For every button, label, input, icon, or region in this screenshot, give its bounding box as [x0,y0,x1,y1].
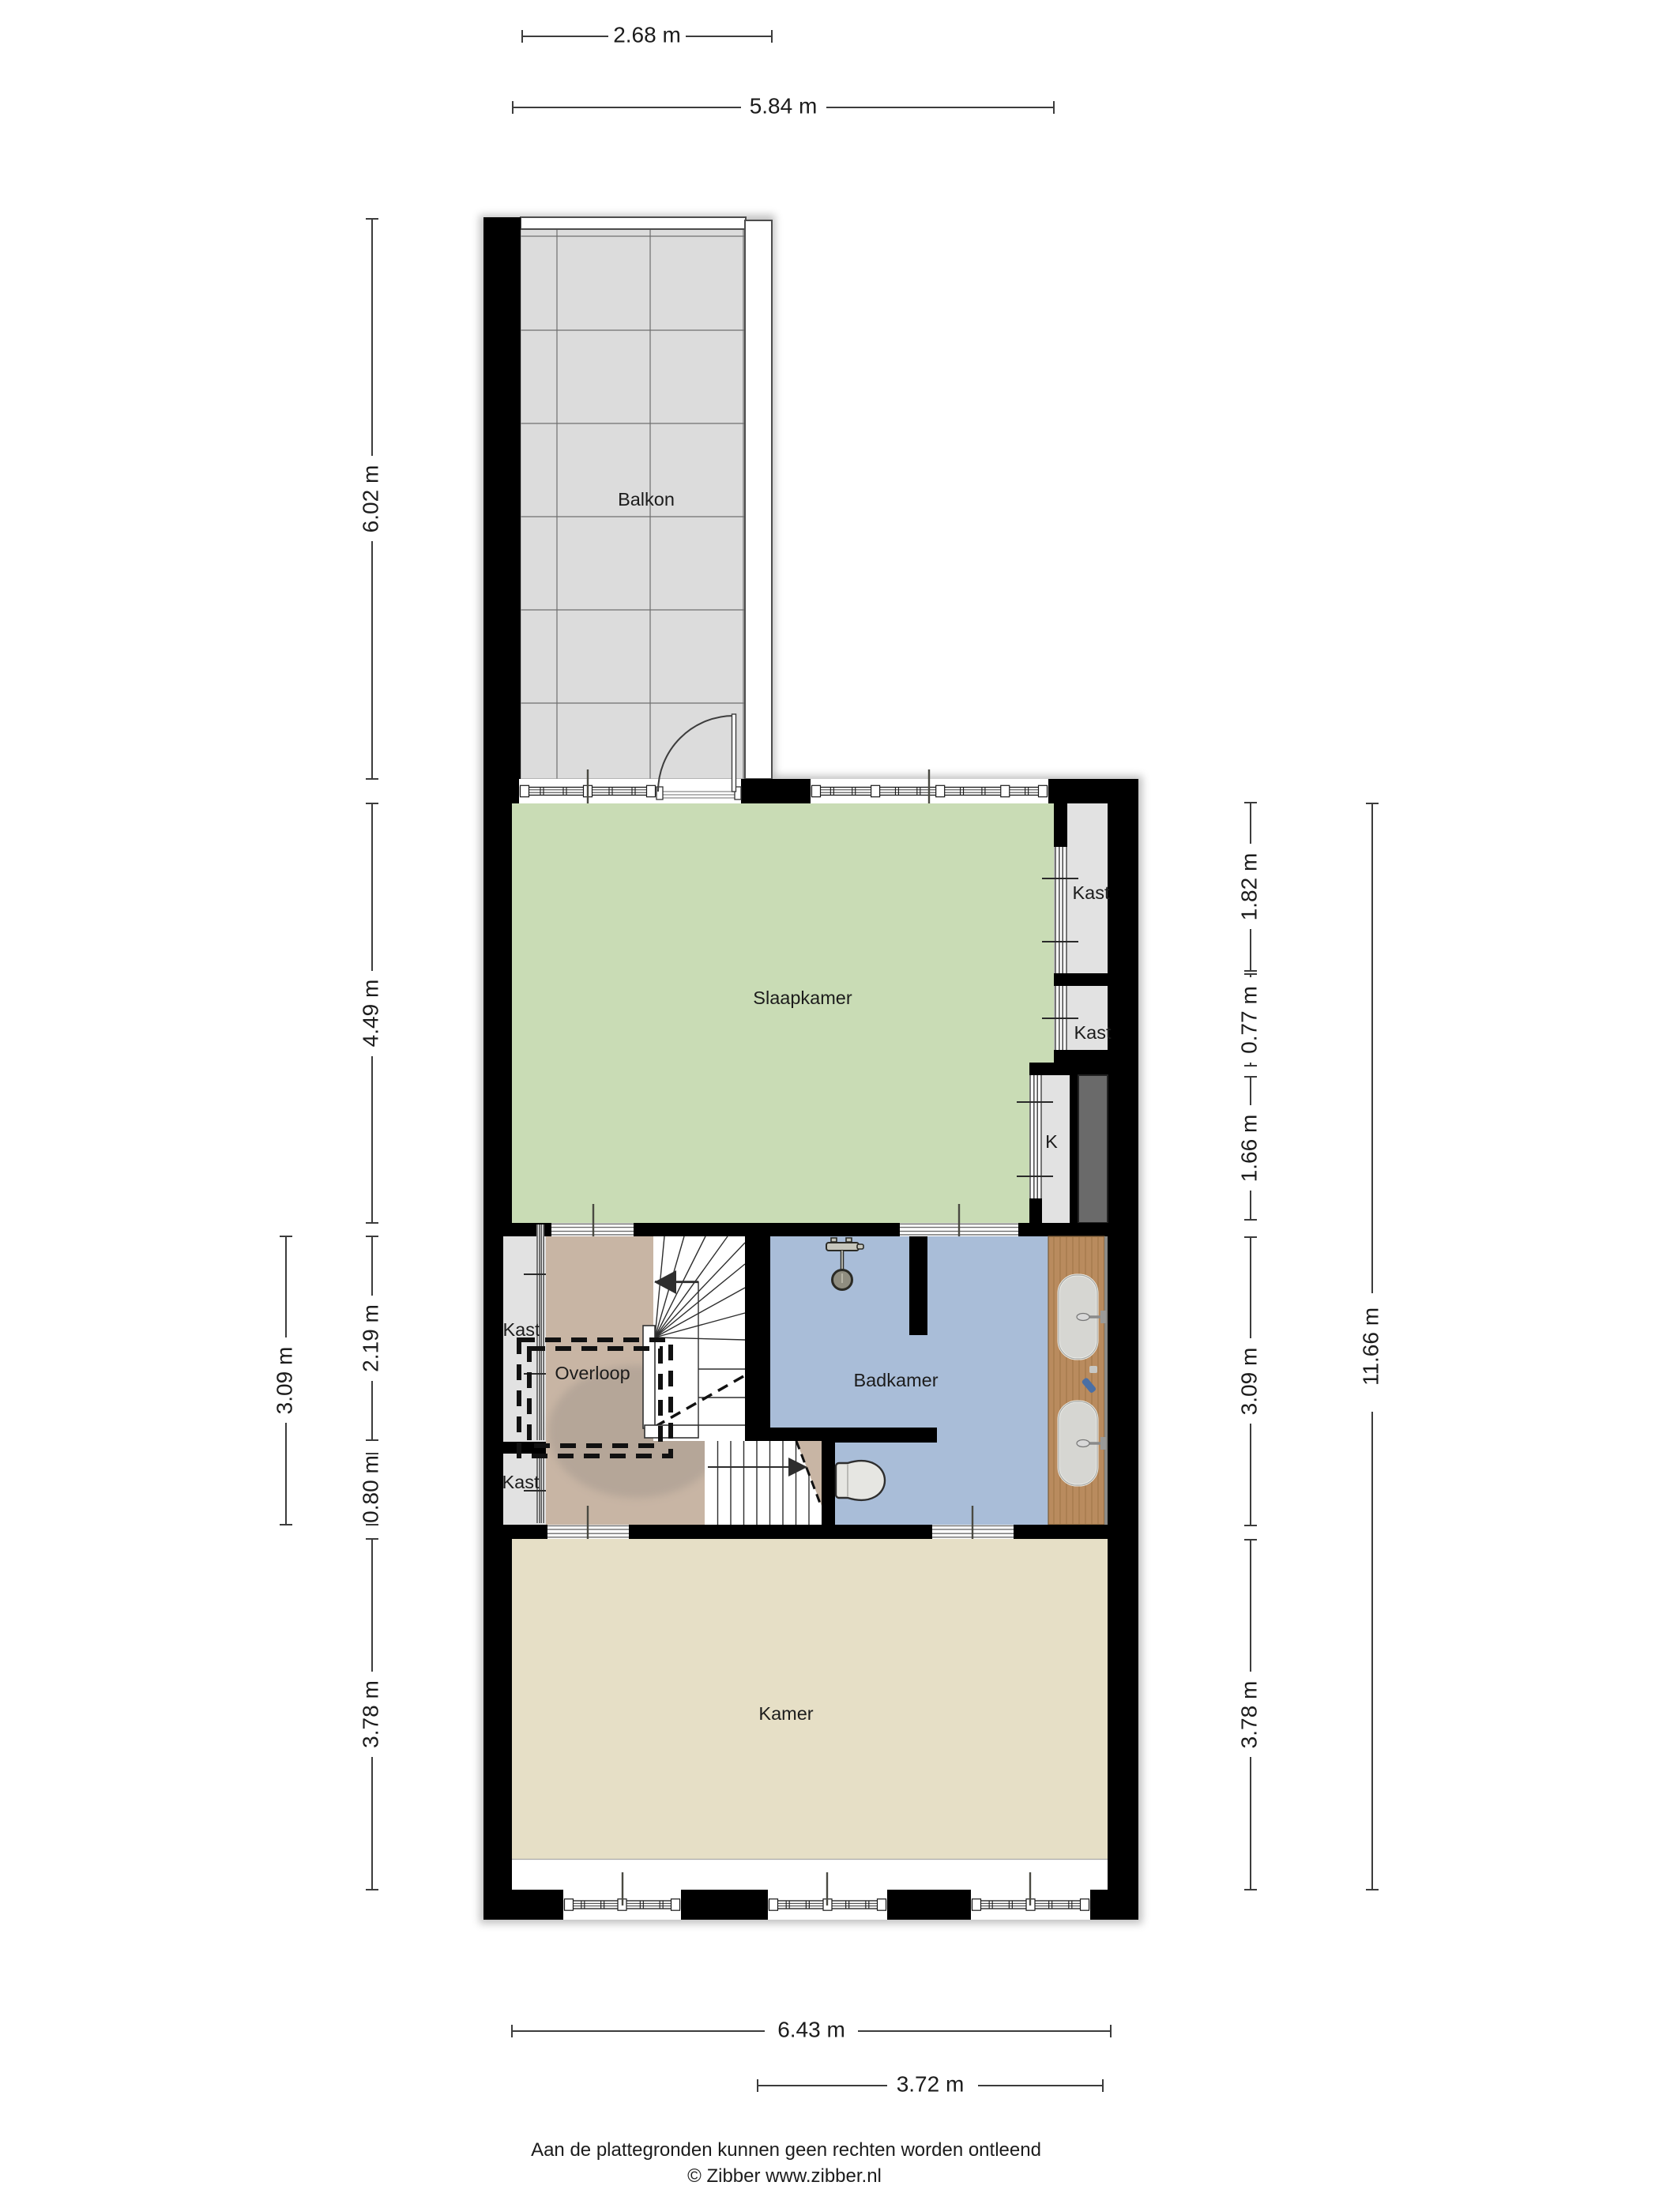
svg-text:1.82 m: 1.82 m [1236,853,1261,921]
svg-text:Balkon: Balkon [618,489,675,510]
svg-text:1.66 m: 1.66 m [1236,1115,1261,1183]
svg-text:Overloop: Overloop [555,1363,630,1383]
svg-text:6.02 m: 6.02 m [358,465,382,533]
svg-text:3.09 m: 3.09 m [272,1347,296,1415]
svg-text:Kast: Kast [1072,882,1109,903]
svg-text:3.78 m: 3.78 m [1236,1681,1261,1749]
svg-text:Kast: Kast [1074,1022,1111,1043]
svg-text:2.19 m: 2.19 m [358,1304,382,1372]
svg-text:K: K [1045,1131,1058,1152]
svg-text:5.84 m: 5.84 m [750,93,818,118]
svg-text:6.43 m: 6.43 m [777,2017,845,2041]
svg-text:Aan de plattegronden kunnen ge: Aan de plattegronden kunnen geen rechten… [531,2139,1041,2161]
svg-text:2.68 m: 2.68 m [613,22,681,47]
svg-text:Kamer: Kamer [758,1703,813,1724]
svg-text:11.66 m: 11.66 m [1358,1307,1382,1386]
svg-text:Slaapkamer: Slaapkamer [753,987,852,1008]
svg-text:© Zibber www.zibber.nl: © Zibber www.zibber.nl [687,2165,882,2187]
svg-text:4.49 m: 4.49 m [358,980,382,1048]
svg-text:Kast: Kast [502,1319,540,1340]
svg-text:3.78 m: 3.78 m [358,1680,382,1748]
svg-text:3.72 m: 3.72 m [897,2071,965,2096]
svg-text:0.77 m: 0.77 m [1236,986,1261,1054]
svg-text:0.80 m: 0.80 m [358,1455,382,1523]
svg-text:Kast: Kast [502,1472,539,1492]
svg-text:3.09 m: 3.09 m [1236,1348,1261,1416]
svg-text:Badkamer: Badkamer [853,1370,938,1390]
